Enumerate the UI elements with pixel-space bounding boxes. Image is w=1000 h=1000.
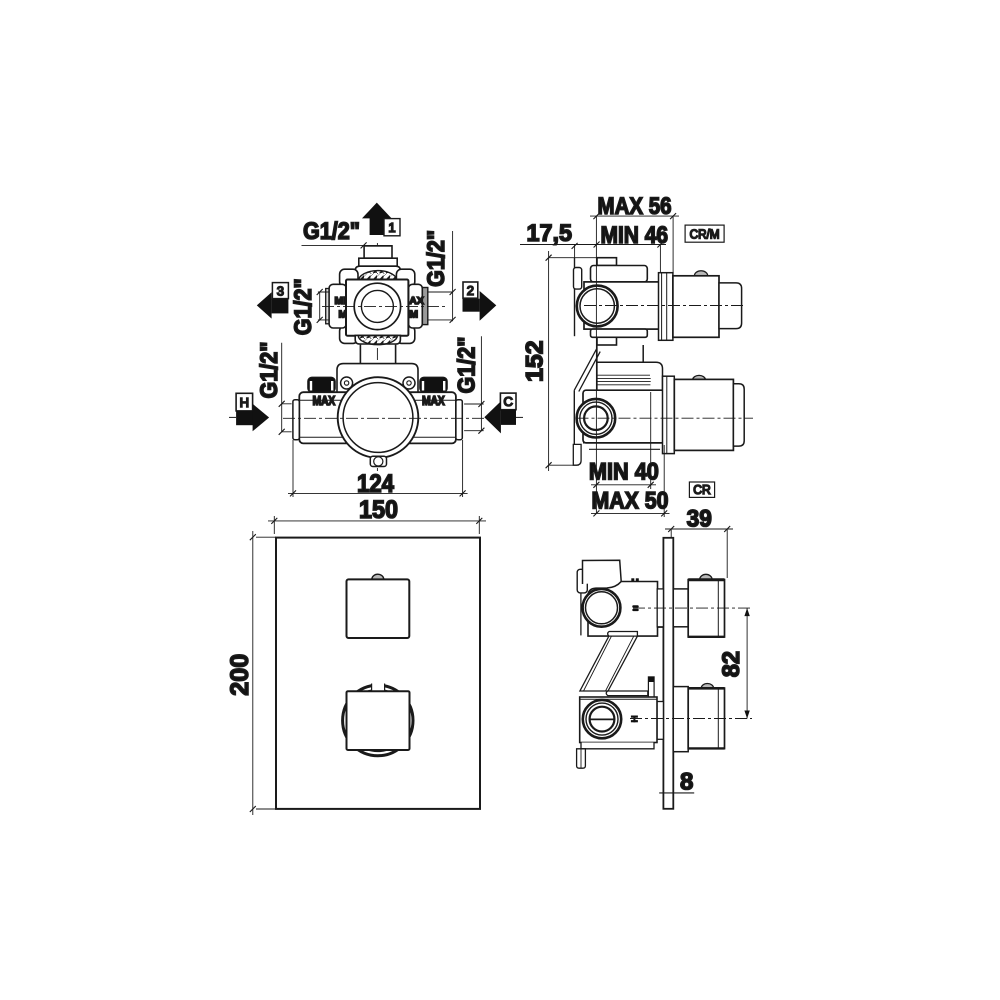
svg-text:MAX 50: MAX 50 (592, 487, 669, 514)
svg-text:MIN 40: MIN 40 (589, 458, 659, 485)
svg-text:CR: CR (693, 482, 711, 497)
svg-text:200: 200 (226, 654, 254, 696)
svg-text:G1/2": G1/2" (256, 342, 283, 399)
svg-text:H: H (240, 395, 249, 410)
svg-text:C: C (504, 394, 513, 409)
svg-text:AX: AX (409, 295, 424, 307)
svg-text:8: 8 (680, 769, 693, 796)
svg-text:82: 82 (718, 651, 745, 677)
svg-text:CR/M: CR/M (690, 227, 720, 241)
svg-text:G1/2": G1/2" (303, 218, 360, 245)
svg-text:124: 124 (357, 470, 394, 498)
svg-text:3: 3 (277, 284, 284, 299)
svg-text:39: 39 (687, 505, 712, 532)
svg-text:150: 150 (359, 496, 398, 524)
svg-text:G1/2": G1/2" (454, 337, 481, 394)
svg-text:152: 152 (522, 340, 549, 382)
svg-text:17,5: 17,5 (527, 220, 573, 247)
svg-text:MAX: MAX (422, 393, 445, 408)
svg-text:MAX: MAX (313, 393, 336, 408)
svg-text:2: 2 (467, 283, 474, 298)
svg-text:G1/2": G1/2" (423, 230, 450, 287)
svg-text:1: 1 (388, 220, 395, 235)
svg-text:G1/2": G1/2" (290, 278, 317, 335)
svg-text:MI: MI (335, 295, 347, 307)
svg-text:M: M (409, 308, 418, 320)
